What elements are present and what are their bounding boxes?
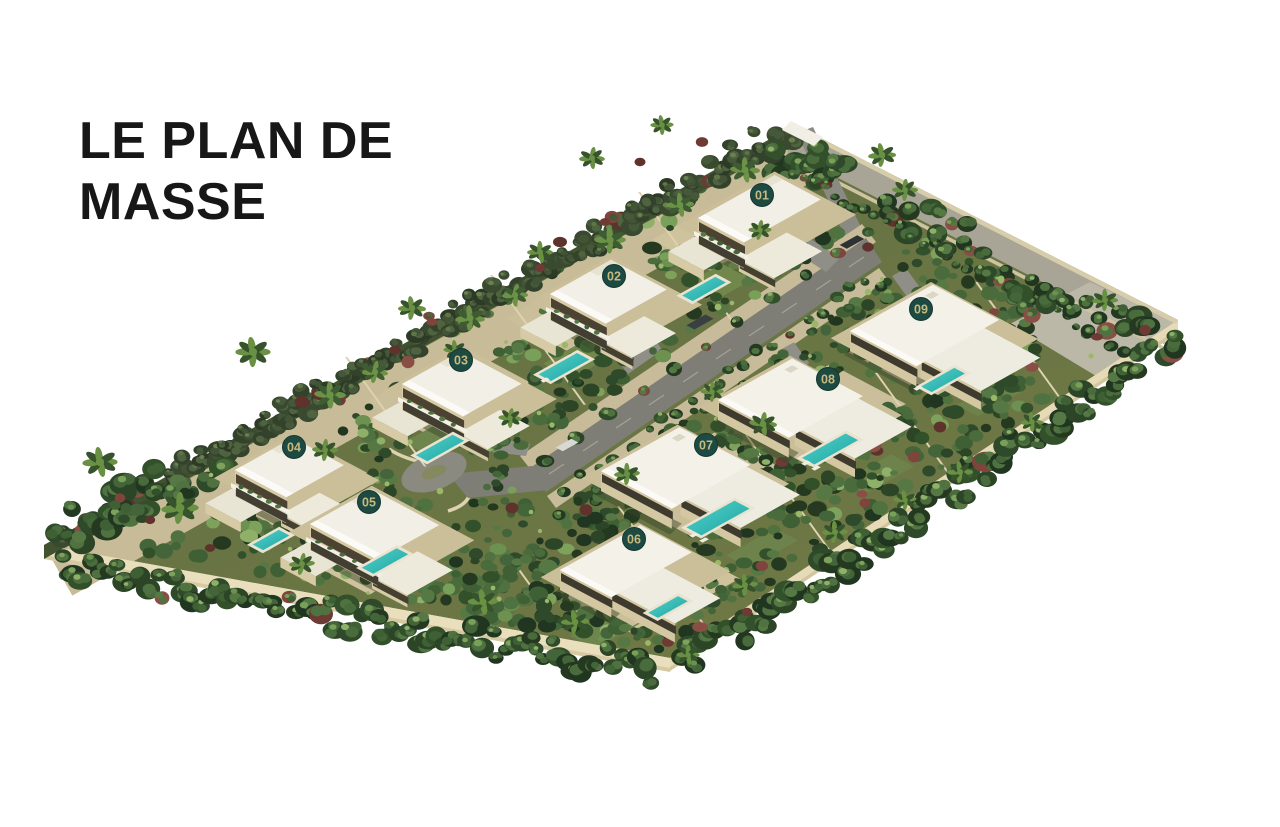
svg-text:08: 08 xyxy=(821,373,835,387)
svg-text:04: 04 xyxy=(287,441,301,455)
svg-text:03: 03 xyxy=(454,354,468,368)
svg-text:09: 09 xyxy=(914,303,928,317)
svg-text:05: 05 xyxy=(362,496,376,510)
svg-text:06: 06 xyxy=(627,533,641,547)
svg-text:02: 02 xyxy=(607,270,621,284)
svg-text:01: 01 xyxy=(755,189,769,203)
svg-text:07: 07 xyxy=(699,439,713,453)
